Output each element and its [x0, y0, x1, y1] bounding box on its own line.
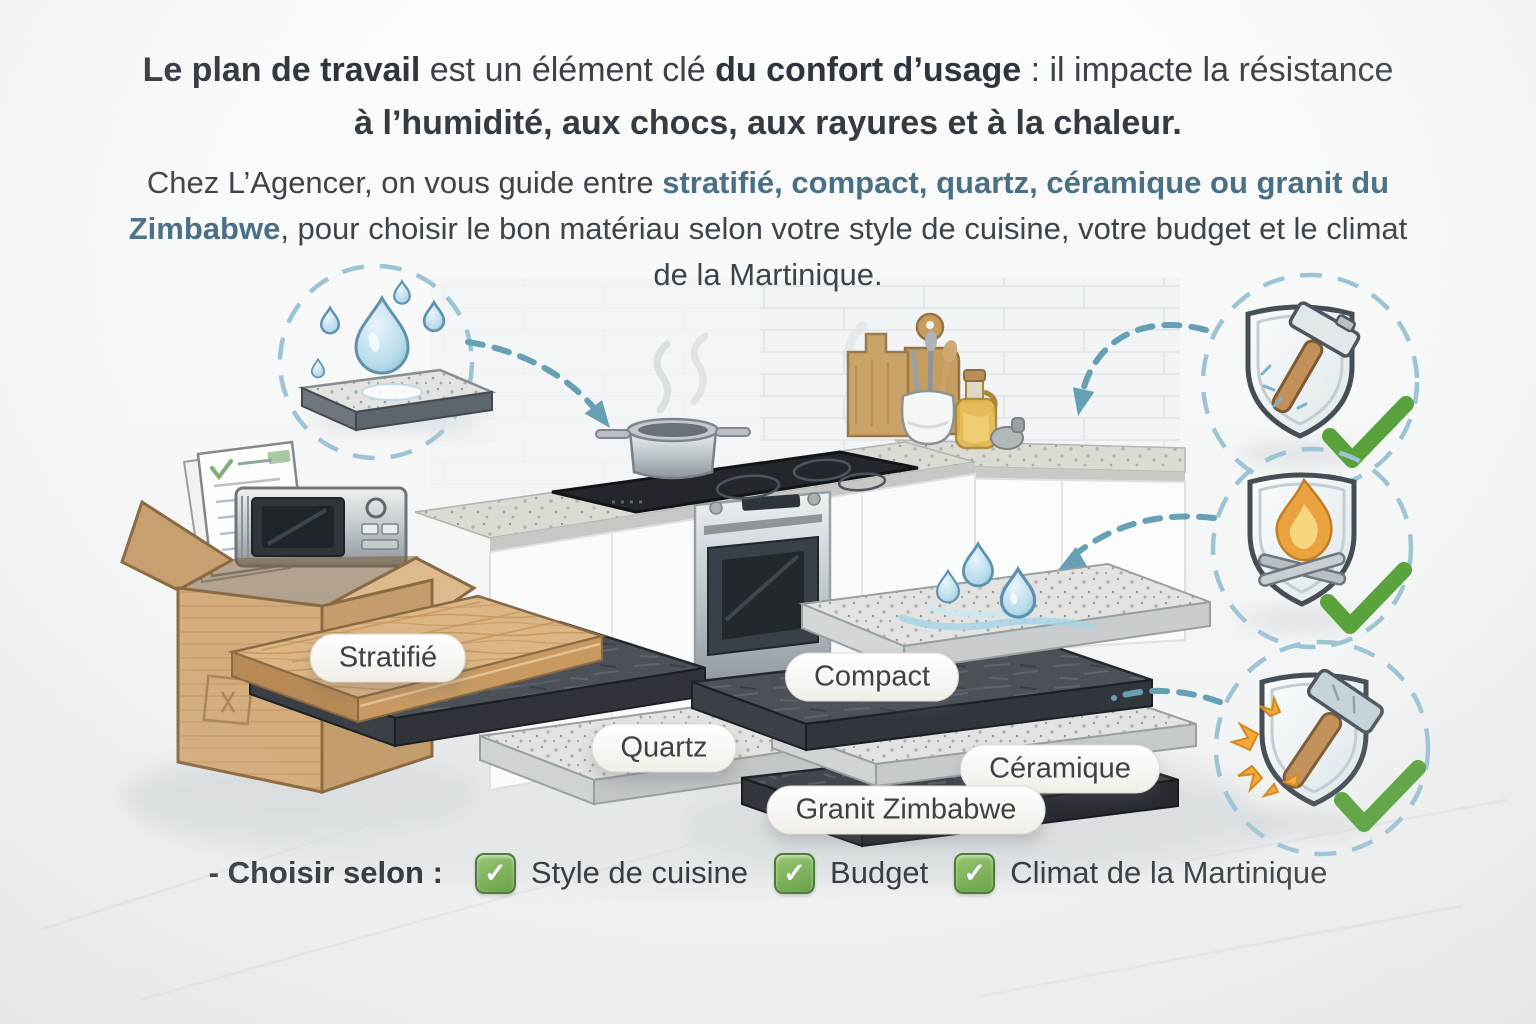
material-label-quartz: Quartz [591, 724, 736, 773]
checklist-item-style: ✓ Style de cuisine [475, 853, 748, 894]
heading: Le plan de travail est un élément clé du… [0, 46, 1536, 149]
checklist-item-budget: ✓ Budget [774, 853, 928, 894]
heading-line1: Le plan de travail est un élément clé du… [0, 46, 1536, 95]
green-checkbox-icon: ✓ [475, 853, 516, 894]
checklist-item-label: Style de cuisine [531, 855, 748, 891]
heading-regular-2: : il impacte la résistance [1021, 51, 1393, 89]
infographic-canvas: Le plan de travail est un élément clé du… [0, 0, 1536, 1024]
material-label-stratifie: Stratifié [310, 634, 466, 683]
scratch-shield-circle [1216, 642, 1428, 854]
green-checkbox-icon: ✓ [774, 853, 815, 894]
criteria-checklist: - Choisir selon : ✓ Style de cuisine ✓ B… [0, 845, 1536, 901]
shield-flame-check-icon [1242, 475, 1404, 630]
material-label-granit-zimbabwe: Granit Zimbabwe [767, 786, 1046, 835]
heading-line2: à l’humidité, aux chocs, aux rayures et … [0, 99, 1536, 148]
intro-paragraph: Chez L’Agencer, on vous guide entre stra… [113, 160, 1423, 298]
heat-shield-circle [1213, 449, 1411, 647]
green-checkbox-icon: ✓ [954, 853, 995, 894]
material-label-compact: Compact [785, 653, 959, 702]
checklist-item-label: Climat de la Martinique [1010, 855, 1327, 891]
impact-shield-circle [1203, 275, 1417, 489]
heading-bold-plan-de-travail: Le plan de travail [143, 51, 421, 89]
intro-part1: Chez L’Agencer, on vous guide entre [147, 165, 662, 200]
checklist-prefix: - Choisir selon : [209, 855, 443, 891]
checklist-item-label: Budget [830, 855, 928, 891]
shield-hammer-check-icon [1238, 294, 1406, 465]
heading-regular-1: est un élément clé [420, 51, 715, 89]
heading-bold-confort: du confort d’usage [715, 51, 1021, 89]
checklist-item-climat: ✓ Climat de la Martinique [954, 853, 1327, 894]
microwave [236, 488, 406, 566]
intro-part2: , pour choisir le bon matériau selon vot… [280, 211, 1407, 292]
